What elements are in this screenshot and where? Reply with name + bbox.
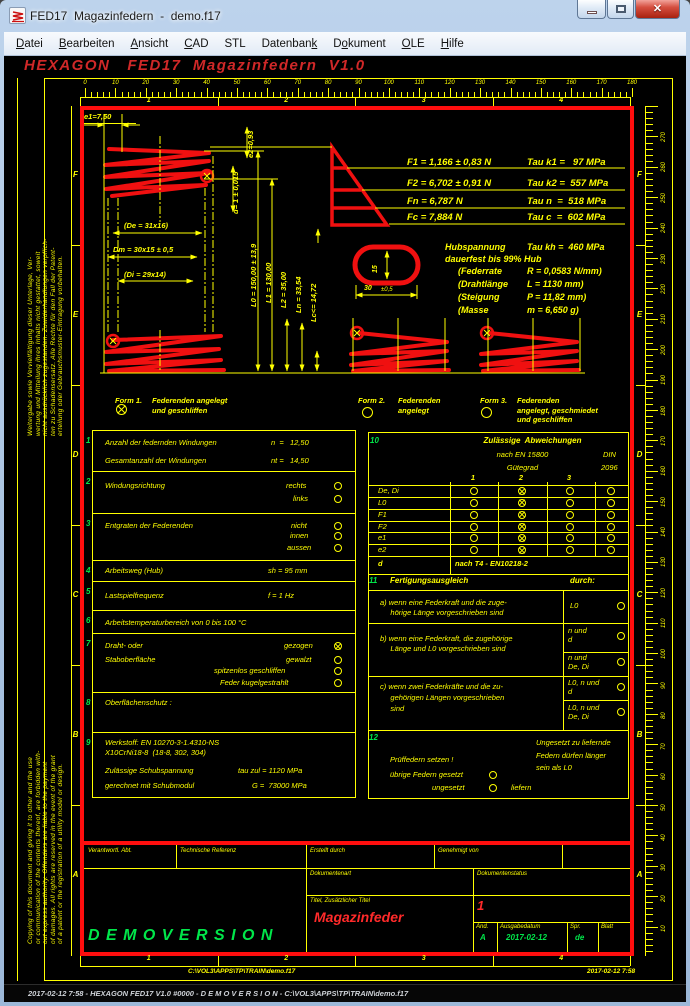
frame-red-line: [80, 952, 634, 956]
ruler-tick: [237, 88, 238, 97]
spec-r4-value: sh = 95 mm: [268, 566, 307, 576]
ruler-tick: [646, 671, 653, 672]
ruler-right-label: 50: [661, 804, 668, 811]
ausgleich-a-option: L0: [570, 601, 578, 611]
spec-num-6: 6: [86, 616, 90, 625]
ruler-tick: [322, 92, 323, 97]
spec-r1b-value: nt = 14,50: [271, 456, 309, 466]
frame-line: [92, 610, 355, 611]
status-bar: 2017-02-12 7:58 - HEXAGON FED17 V1.0 #00…: [4, 984, 686, 1002]
form3-symbol: [481, 407, 492, 418]
dim-l1: L1 = 130,00: [264, 263, 274, 303]
ruler-right-label: 200: [661, 345, 668, 355]
ruler-tick: [646, 422, 653, 423]
ruler-tick: [646, 726, 653, 727]
frame-line: [562, 845, 563, 868]
status-text: 2017-02-12 7:58 - HEXAGON FED17 V1.0 #00…: [28, 989, 408, 998]
ruler-tick: [646, 580, 653, 581]
tb-spr-value: de: [575, 933, 584, 942]
ruler-right-label: 110: [661, 618, 668, 628]
force-fc: Fc = 7,884 N: [407, 212, 462, 223]
ruler-tick: [646, 823, 653, 824]
ruler-tick: [646, 787, 653, 788]
frame-line: [44, 78, 45, 980]
ruler-tick: [377, 92, 378, 97]
ruler-tick: [646, 440, 658, 441]
abw-d-label: d: [378, 559, 383, 569]
drawing-graphics: [0, 0, 690, 1006]
ruler-tick: [646, 507, 653, 508]
abw-radio-grade3: [566, 511, 574, 519]
ruler-tick: [646, 793, 653, 794]
ruler-tick: [620, 92, 621, 97]
abw-grid-line: [368, 556, 628, 557]
ruler-tick: [474, 92, 475, 97]
hub-federrate-value: R = 0,0583 N/mm): [527, 265, 602, 278]
frame-col-number: 4: [559, 97, 563, 105]
ruler-tick: [646, 556, 653, 557]
band-line: [493, 97, 494, 106]
ruler-top-label: 170: [597, 80, 607, 87]
ruler-tick: [646, 343, 653, 344]
abw-radio-din: [607, 523, 615, 531]
ruler-tick: [646, 781, 653, 782]
hub-federrate-label: (Federrate: [458, 265, 502, 278]
ruler-tick: [176, 88, 177, 97]
ruler-tick: [646, 410, 658, 411]
ruler-tick: [646, 337, 653, 338]
radio-rechts: [334, 482, 342, 490]
ruler-tick: [646, 459, 653, 460]
tb-titel-label: Titel, Zusätzlicher Titel: [310, 898, 370, 905]
tb-techref: Technische Referenz: [180, 848, 236, 855]
ruler-right-label: 10: [661, 925, 668, 932]
ruler-tick: [486, 92, 487, 97]
frame-zone-tick: [636, 385, 645, 386]
ruler-tick: [413, 92, 414, 97]
spec-r7-label1: Draht- oder: [105, 641, 143, 651]
ruler-tick: [571, 88, 572, 97]
ruler-tick: [646, 319, 658, 320]
ruler-tick: [646, 592, 658, 593]
frame-row-letter-b: B: [635, 730, 644, 739]
abw-din-number: 2096: [601, 463, 618, 473]
ruler-tick: [646, 282, 653, 283]
ruler-top-label: 80: [325, 80, 332, 87]
ruler-right-label: 190: [661, 375, 668, 385]
band-line: [80, 97, 81, 106]
ruler-tick: [316, 92, 317, 97]
abw-radio-grade2: [518, 523, 526, 531]
ruler-tick: [346, 92, 347, 97]
spec-r9-line1: Werkstoff: EN 10270-3-1.4310-NS: [105, 738, 219, 748]
frame-row-letter-c: C: [71, 590, 80, 599]
force-fn: Fn = 6,787 N: [407, 196, 463, 207]
ruler-tick: [225, 92, 226, 97]
ruler-tick: [646, 197, 658, 198]
ruler-right-label: 220: [661, 284, 668, 294]
ausgleich-b-text: b) wenn eine Federkraft, die zugehörige …: [380, 634, 513, 653]
ruler-tick: [134, 92, 135, 97]
dim-e1: e1=7,50: [84, 112, 111, 122]
ruler-tick: [646, 683, 658, 684]
form2-symbol: [362, 407, 373, 418]
radio-links: [334, 495, 342, 503]
ruler-tick: [646, 835, 658, 836]
spec-r2-opt-links: links: [293, 494, 308, 504]
ruler-tick: [646, 112, 653, 113]
abw-grade-label: Gütegrad: [440, 463, 605, 473]
pruef-line1: Prüffedern setzen !: [390, 755, 453, 765]
footer-file-path: C:\VOL3\APPS\TP\TRAIN\demo.f17: [188, 968, 295, 976]
ruler-tick: [646, 203, 653, 204]
band-line: [355, 97, 356, 106]
ruler-tick: [646, 428, 653, 429]
ruler-top-label: 70: [294, 80, 301, 87]
ruler-tick: [523, 92, 524, 97]
ruler-tick: [158, 92, 159, 97]
ruler-tick: [401, 92, 402, 97]
ruler-tick: [646, 775, 658, 776]
tau-k2: Tau k2 = 557 MPa: [527, 178, 608, 189]
ruler-tick: [646, 665, 653, 666]
ruler-tick: [646, 732, 653, 733]
ruler-tick: [298, 88, 299, 97]
abw-radio-grade3: [566, 487, 574, 495]
ruler-tick: [646, 902, 653, 903]
abw-radio-din: [607, 511, 615, 519]
ruler-tick: [646, 933, 653, 934]
radio-gesetzt: [489, 771, 497, 779]
ruler-tick: [646, 708, 653, 709]
radio-aussen: [334, 544, 342, 552]
ruler-top-label: 180: [627, 80, 637, 87]
tau-c: Tau c = 602 MPa: [527, 212, 606, 223]
abw-row-label: L0: [378, 498, 386, 508]
frame-line: [368, 798, 629, 799]
ruler-right-label: 250: [661, 193, 668, 203]
frame-line: [473, 868, 474, 952]
ausgleich-c-text: c) wenn zwei Federkräfte und die zu- geh…: [380, 681, 504, 714]
abw-radio-grade2: [518, 546, 526, 554]
ruler-tick: [334, 92, 335, 97]
frame-zone-tick: [636, 525, 645, 526]
ruler-tick: [602, 88, 603, 97]
ruler-tick: [646, 185, 653, 186]
ausgleich-b-option2: n und De, Di: [568, 653, 589, 671]
ruler-top-label: 90: [355, 80, 362, 87]
frame-col-number: 3: [422, 97, 426, 105]
ruler-right-label: 60: [661, 773, 668, 780]
ruler-tick: [646, 373, 653, 374]
ruler-tick: [646, 143, 653, 144]
ruler-tick: [646, 629, 653, 630]
ruler-top-label: 110: [414, 80, 424, 87]
band-line: [355, 956, 356, 966]
ruler-tick: [646, 106, 658, 107]
ruler-tick: [646, 586, 653, 587]
ruler-tick: [646, 927, 658, 928]
ruler-tick: [646, 288, 658, 289]
ruler-tick: [646, 611, 653, 612]
ruler-tick: [646, 246, 653, 247]
ruler-tick: [646, 659, 653, 660]
ruler-tick: [646, 720, 653, 721]
ruler-tick: [565, 92, 566, 97]
force-diagram-triangle: [332, 147, 387, 225]
ruler-tick: [646, 276, 653, 277]
ruler-tick: [646, 313, 653, 314]
dim-d: d= 1 ± 0,015: [231, 172, 241, 214]
ruler-tick: [213, 92, 214, 97]
abw-radio-grade1: [470, 487, 478, 495]
ruler-right-label: 90: [661, 682, 668, 689]
pruef-line3: ungesetzt: [432, 783, 465, 793]
ruler-tick: [280, 92, 281, 97]
ruler-tick: [85, 88, 86, 97]
ruler-tick: [529, 92, 530, 97]
ruler-tick: [583, 92, 584, 97]
ruler-tick: [389, 88, 390, 97]
frame-line: [92, 471, 355, 472]
ruler-tick: [646, 513, 653, 514]
ruler-tick: [646, 811, 653, 812]
ruler-tick: [646, 604, 653, 605]
ruler-tick: [535, 92, 536, 97]
ruler-tick: [419, 88, 420, 97]
ruler-top-label: 10: [112, 80, 119, 87]
ruler-tick: [646, 702, 653, 703]
frame-line: [44, 980, 672, 981]
ruler-tick: [646, 434, 653, 435]
ruler-tick: [646, 161, 653, 162]
radio-spitzenlos: [334, 667, 342, 675]
frame-red-line: [80, 106, 634, 110]
form2-label: Form 2.: [358, 396, 385, 406]
ruler-tick: [646, 349, 658, 350]
ruler-tick: [646, 574, 653, 575]
abw-col-2: 2: [516, 473, 526, 483]
ruler-tick: [468, 92, 469, 97]
ruler-right-label: 270: [661, 132, 668, 142]
ruler-tick: [541, 88, 542, 97]
abw-grid-line: [547, 482, 548, 556]
spec-r3-label: Entgraten der Federenden: [105, 521, 193, 531]
ruler-tick: [152, 92, 153, 97]
ruler-top-label: 0: [83, 80, 86, 87]
ruler-top-label: 50: [234, 80, 241, 87]
ruler-tick: [188, 92, 189, 97]
band-line: [493, 956, 494, 966]
ruler-top-label: 20: [142, 80, 149, 87]
ruler-tick: [646, 896, 658, 897]
frame-zone-tick: [71, 525, 80, 526]
form1-desc: Federenden angelegt und geschliffen: [152, 396, 227, 415]
frame-line: [672, 78, 673, 981]
ruler-tick: [267, 88, 268, 97]
frame-line: [355, 430, 356, 798]
band-line: [218, 956, 219, 966]
ruler-tick: [140, 92, 141, 97]
ruler-tick: [395, 92, 396, 97]
ruler-tick: [646, 854, 653, 855]
pruef-number: 12: [369, 733, 378, 742]
abw-grid-line: [450, 482, 451, 574]
frame-zone-tick: [71, 665, 80, 666]
radio-ungesetzt: [489, 784, 497, 792]
abw-col-1: 1: [468, 473, 478, 483]
frame-line: [306, 895, 630, 896]
radio-ausgleich-a: [617, 602, 625, 610]
frame-line: [497, 922, 498, 952]
ruler-tick: [646, 501, 658, 502]
ruler-tick: [207, 88, 208, 97]
abw-radio-grade2: [518, 487, 526, 495]
ruler-tick: [646, 750, 653, 751]
ruler-tick: [646, 562, 658, 563]
spec-r9-value4: G = 73000 MPa: [252, 781, 307, 791]
ruler-tick: [646, 519, 653, 520]
form3-label: Form 3.: [480, 396, 507, 406]
ruler-tick: [444, 92, 445, 97]
frame-line: [306, 845, 307, 952]
ruler-tick: [646, 890, 653, 891]
tb-spr-label: Spr.: [570, 924, 581, 931]
ruler-tick: [646, 544, 653, 545]
frame-zone-tick: [636, 665, 645, 666]
ruler-tick: [431, 92, 432, 97]
spec-r1a-value: n = 12,50: [271, 438, 309, 448]
ruler-top-label: 160: [566, 80, 576, 87]
radio-ausgleich-c2: [617, 708, 625, 716]
ruler-tick: [646, 738, 653, 739]
pruef-note: Ungesetzt zu liefernde Federn dürfen län…: [536, 737, 611, 775]
dim-l0: L0 = 150,00 ± 13,9: [249, 244, 259, 307]
ruler-tick: [646, 951, 653, 952]
tb-aend-label: Änd.: [476, 924, 488, 931]
ruler-tick: [614, 92, 615, 97]
ruler-right-label: 70: [661, 743, 668, 750]
radio-ausgleich-b1: [617, 632, 625, 640]
ruler-right-label: 230: [661, 254, 668, 264]
ruler-tick: [359, 88, 360, 97]
frame-line: [92, 633, 355, 634]
ruler-top-label: 140: [505, 80, 515, 87]
ruler-tick: [97, 92, 98, 97]
ruler-tick: [646, 714, 658, 715]
ruler-top-label: 130: [475, 80, 485, 87]
ruler-tick: [646, 884, 653, 885]
ruler-tick: [646, 452, 653, 453]
ruler-tick: [646, 945, 653, 946]
ruler-tick: [646, 489, 653, 490]
ruler-tick: [103, 92, 104, 97]
ruler-right-label: 120: [661, 588, 668, 598]
frame-line: [84, 123, 136, 124]
frame-line: [71, 106, 72, 956]
spec-num-5: 5: [86, 587, 90, 596]
ruler-tick: [646, 307, 653, 308]
abw-grid-line: [498, 482, 499, 556]
frame-row-letter-e: E: [635, 310, 644, 319]
ruler-tick: [261, 92, 262, 97]
frame-col-number: 2: [284, 955, 288, 963]
ruler-tick: [590, 92, 591, 97]
ruler-tick: [646, 696, 653, 697]
radio-gewalzt: [334, 656, 342, 664]
spec-r5-value: f = 1 Hz: [268, 591, 294, 601]
ruler-tick: [577, 92, 578, 97]
frame-row-letter-a: A: [635, 870, 644, 879]
ruler-tick: [646, 301, 653, 302]
ruler-tick: [646, 878, 653, 879]
dim-e2: e2=0,93: [246, 131, 256, 158]
spec-r3-opt-innen: innen: [290, 531, 308, 541]
ruler-right-label: 80: [661, 712, 668, 719]
frame-zone-tick: [71, 385, 80, 386]
spec-r4-label: Arbeitsweg (Hub): [105, 566, 163, 576]
ruler-tick: [646, 841, 653, 842]
spec-r7-opt-gezogen: gezogen: [284, 641, 313, 651]
ruler-right-label: 170: [661, 436, 668, 446]
ruler-tick: [340, 92, 341, 97]
ruler-tick: [243, 92, 244, 97]
frame-row-letter-f: F: [635, 170, 644, 179]
ruler-tick: [646, 872, 653, 873]
dim-de: (De = 31x16): [124, 221, 168, 231]
ruler-tick: [498, 92, 499, 97]
ruler-tick: [646, 829, 653, 830]
ruler-tick: [646, 550, 653, 551]
ruler-top-label: 30: [173, 80, 180, 87]
frame-zone-tick: [636, 805, 645, 806]
ruler-right-label: 180: [661, 406, 668, 416]
ausgleich-c-option2: L0, n und De, Di: [568, 703, 599, 721]
hub-masse-value: m = 6,650 g): [527, 304, 579, 317]
frame-line: [563, 590, 564, 730]
frame-red-line: [630, 106, 634, 956]
ruler-right-label: 100: [661, 649, 668, 659]
ruler-tick: [383, 92, 384, 97]
ruler-tick: [182, 92, 183, 97]
ruler-tick: [646, 635, 653, 636]
spec-num-2: 2: [86, 477, 90, 486]
frame-line: [17, 78, 18, 981]
ruler-right-label: 140: [661, 527, 668, 537]
ruler-tick: [450, 88, 451, 97]
ruler-tick: [646, 532, 658, 533]
abw-row-label: F1: [378, 510, 387, 520]
frame-row-letter-d: D: [635, 450, 644, 459]
abw-row-label: e1: [378, 533, 386, 543]
form3-desc: Federenden angelegt, geschmiedet und ges…: [517, 396, 598, 425]
pruef-line4: liefern: [511, 783, 531, 793]
dim-di: (Di = 29x14): [124, 270, 166, 280]
ruler-tick: [553, 92, 554, 97]
spec-num-7: 7: [86, 639, 90, 648]
ruler-tick: [646, 598, 653, 599]
ruler-tick: [646, 756, 653, 757]
tb-page-number: 1: [477, 899, 484, 913]
pruef-line2: übrige Federn gesetzt: [390, 770, 463, 780]
abw-row-label: F2: [378, 522, 387, 532]
ruler-tick: [646, 380, 658, 381]
frame-line: [92, 513, 355, 514]
frame-line: [44, 78, 672, 79]
abw-col-3: 3: [564, 473, 574, 483]
frame-row-letter-a: A: [71, 870, 80, 879]
ruler-tick: [128, 92, 129, 97]
